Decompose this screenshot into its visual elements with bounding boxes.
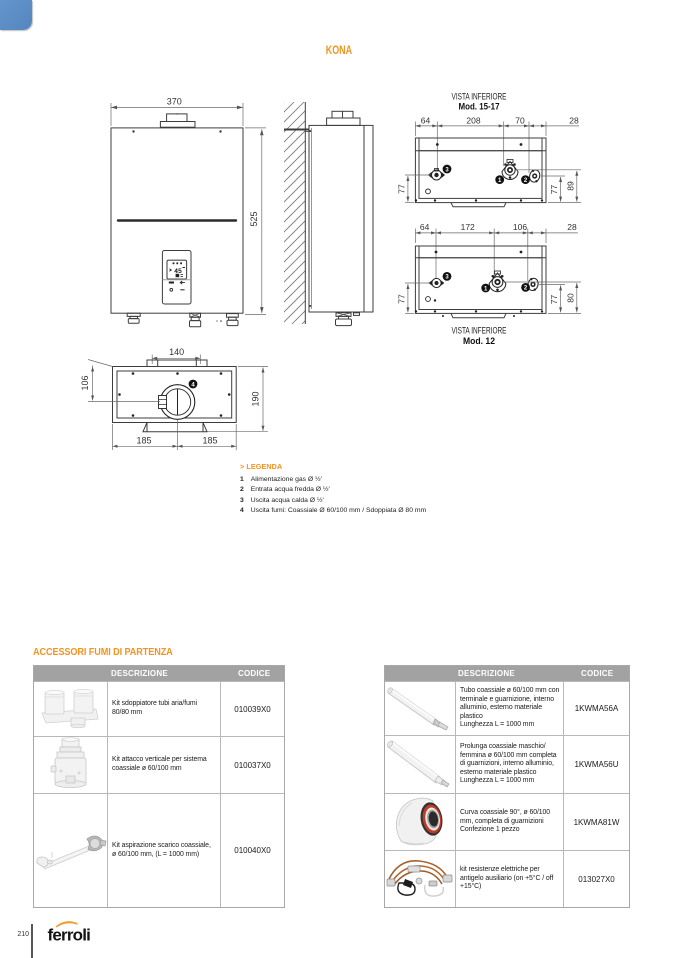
- svg-text:370: 370: [167, 97, 182, 107]
- svg-text:28: 28: [567, 222, 577, 232]
- svg-text:77: 77: [397, 184, 407, 194]
- svg-text:VISTA INFERIORE: VISTA INFERIORE: [452, 326, 507, 336]
- svg-text:70: 70: [515, 116, 525, 126]
- svg-text:185: 185: [202, 436, 217, 446]
- svg-text:28: 28: [569, 116, 579, 126]
- svg-text:140: 140: [169, 347, 184, 357]
- svg-text:172: 172: [461, 222, 475, 232]
- svg-text:64: 64: [421, 116, 431, 126]
- svg-text:106: 106: [513, 222, 527, 232]
- svg-text:89: 89: [565, 181, 575, 191]
- svg-text:185: 185: [136, 436, 151, 446]
- svg-text:77: 77: [397, 294, 407, 304]
- svg-text:Mod. 15-17: Mod. 15-17: [459, 102, 500, 113]
- svg-text:ferroli: ferroli: [48, 926, 91, 945]
- svg-text:190: 190: [250, 391, 260, 406]
- svg-text:525: 525: [249, 211, 259, 226]
- svg-text:77: 77: [549, 185, 559, 195]
- svg-text:208: 208: [466, 116, 480, 126]
- svg-text:64: 64: [420, 222, 430, 232]
- svg-text:Mod. 12: Mod. 12: [463, 336, 495, 347]
- svg-text:VISTA INFERIORE: VISTA INFERIORE: [452, 92, 507, 102]
- svg-text:80: 80: [565, 293, 575, 303]
- svg-text:77: 77: [549, 295, 559, 305]
- svg-text:106: 106: [80, 375, 90, 390]
